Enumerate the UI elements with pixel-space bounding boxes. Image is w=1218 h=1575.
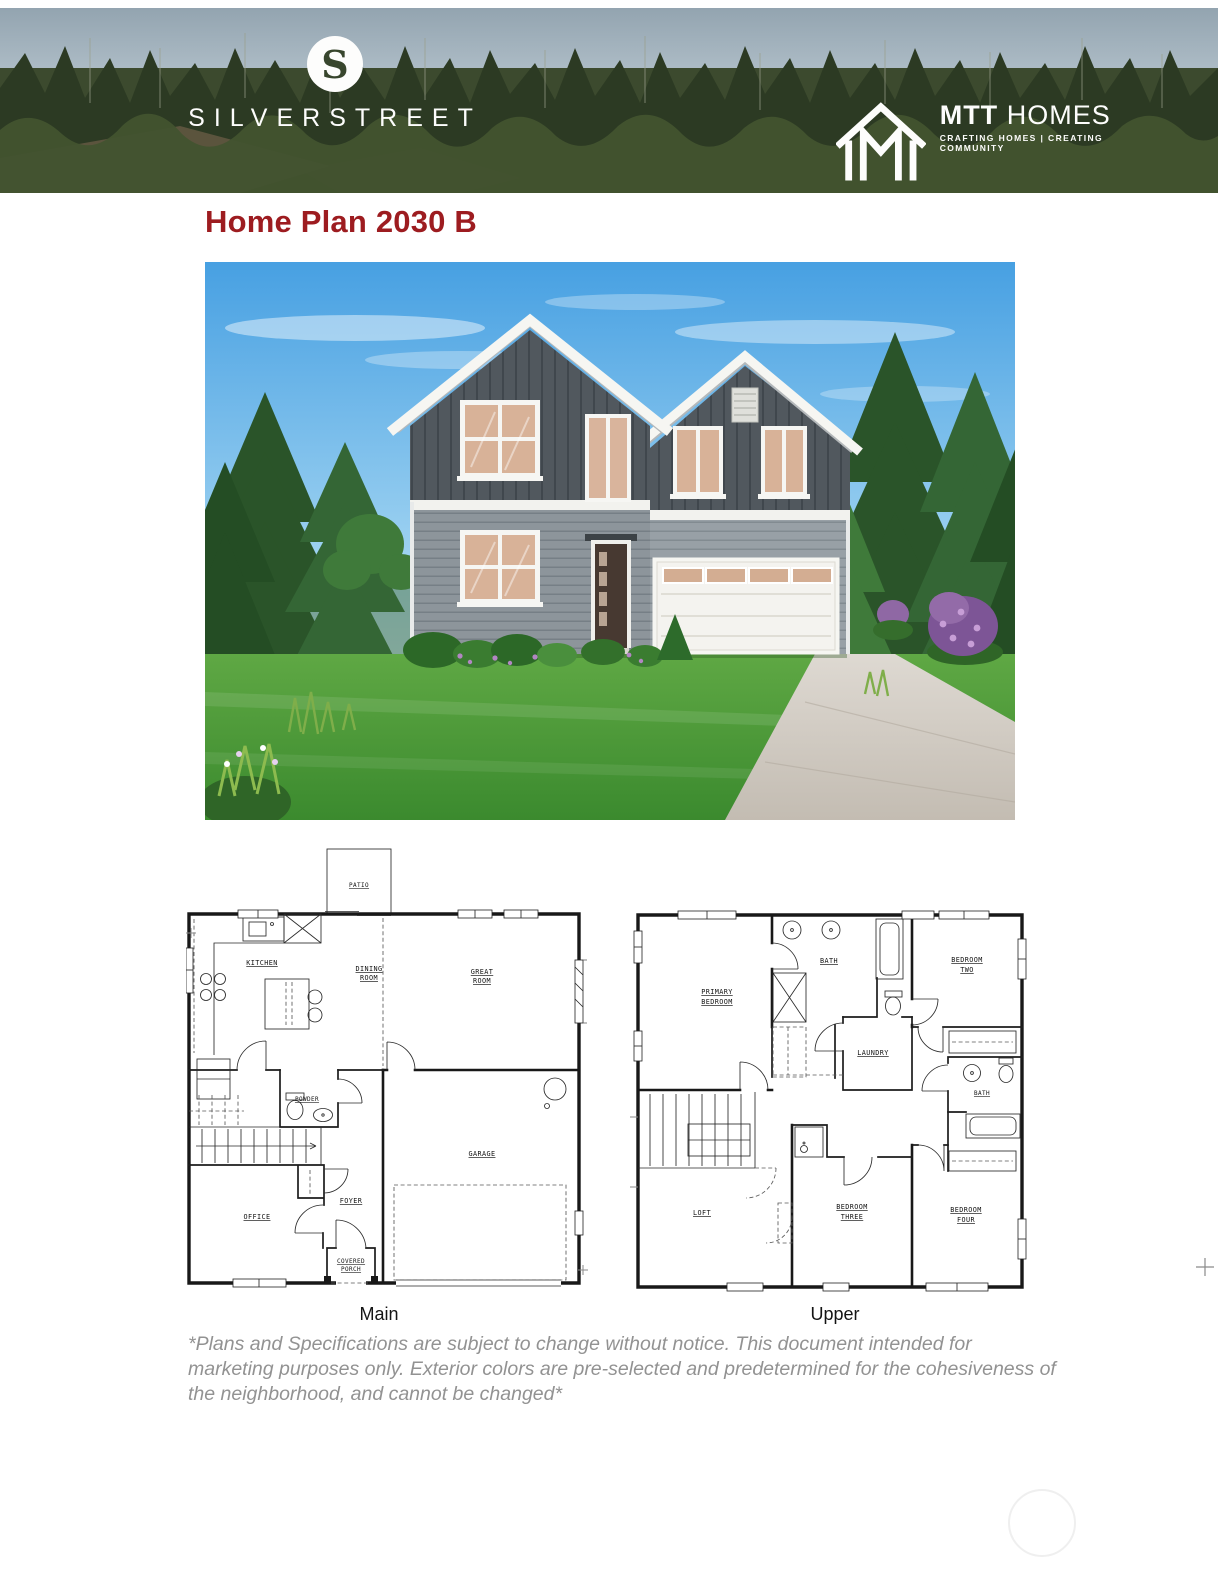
disclaimer-line-3: the neighborhood, and cannot be changed* [188, 1382, 1108, 1407]
room-label-bath2: BATH [974, 1090, 990, 1097]
room-label-kitchen: KITCHEN [246, 959, 277, 967]
house-rendering [205, 262, 1015, 820]
render-ground [205, 654, 1015, 820]
main-interior-walls [189, 1070, 579, 1283]
room-label-dining-1: DINING [356, 965, 383, 973]
room-label-laundry: LAUNDRY [857, 1049, 888, 1057]
forest-banner: S SILVERSTREET MTT HOMES [0, 8, 1218, 193]
room-label-powder: POWDER [295, 1096, 319, 1103]
window-right-gable-2 [758, 426, 810, 499]
room-label-porch-1: COVERED [337, 1258, 365, 1265]
floor-plan-upper: PRIMARY BEDROOM BATH BEDROOM TWO LAUNDRY… [630, 905, 1028, 1305]
upper-stairs [638, 1092, 755, 1168]
room-label-primary-2: BEDROOM [701, 998, 732, 1006]
front-door [585, 534, 637, 654]
page-title: Home Plan 2030 B [205, 204, 477, 240]
bath-fixtures [773, 919, 903, 1022]
survey-cross [186, 928, 588, 1275]
floor-trim-right [650, 510, 850, 520]
window-center-tall [585, 414, 631, 502]
window-upper-left [457, 400, 543, 481]
caption-upper-floor: Upper [735, 1304, 935, 1325]
room-label-bedroom3-2: THREE [841, 1213, 863, 1221]
caption-main-floor: Main [279, 1304, 479, 1325]
room-label-patio: PATIO [349, 882, 369, 889]
flyer-page: S SILVERSTREET MTT HOMES [0, 0, 1218, 1575]
kitchen-fixtures [194, 914, 322, 1099]
floor-plan-main: PATIO [186, 843, 588, 1313]
room-label-dining-2: ROOM [360, 974, 378, 982]
mtt-homes-logo: MTT HOMES CRAFTING HOMES | CREATING COMM… [836, 100, 1166, 182]
house-rendering-image [205, 262, 1015, 820]
room-label-bedroom4-2: FOUR [957, 1216, 975, 1224]
registration-cross [1196, 1258, 1214, 1276]
silverstreet-logo: S SILVERSTREET [185, 36, 485, 133]
room-label-bedroom2-1: BEDROOM [951, 956, 982, 964]
disclaimer-line-2: marketing purposes only. Exterior colors… [188, 1357, 1108, 1382]
mtt-tagline: CRAFTING HOMES | CREATING COMMUNITY [940, 133, 1166, 153]
silverstreet-wordmark: SILVERSTREET [185, 104, 485, 133]
room-label-loft: LOFT [693, 1209, 711, 1217]
room-label-porch-2: PORCH [341, 1266, 361, 1273]
room-label-primary-1: PRIMARY [701, 988, 732, 996]
mtt-brand-bold: MTT [940, 100, 998, 130]
garage-fixtures [394, 1078, 566, 1280]
room-label-great-1: GREAT [471, 968, 493, 976]
bath2-fixtures [949, 1031, 1020, 1171]
mtt-house-icon [836, 100, 926, 182]
window-lower-left [457, 530, 543, 607]
window-right-gable-1 [670, 426, 726, 499]
gable-vent [732, 388, 758, 422]
room-label-bedroom2-2: TWO [960, 966, 973, 974]
room-label-bedroom3-1: BEDROOM [836, 1203, 867, 1211]
loft-dashed-lines [746, 1168, 792, 1243]
room-label-bath: BATH [820, 957, 838, 965]
silverstreet-icon: S [307, 36, 363, 92]
main-stairs [189, 1095, 321, 1165]
room-label-bedroom4-1: BEDROOM [950, 1206, 981, 1214]
room-label-garage: GARAGE [469, 1150, 496, 1158]
bedroom3-vanity [795, 1127, 823, 1157]
mtt-brand: MTT HOMES [940, 100, 1166, 130]
disclaimer-line-1: *Plans and Specifications are subject to… [188, 1332, 1108, 1357]
mtt-brand-light: HOMES [1007, 100, 1111, 130]
room-label-great-2: ROOM [473, 977, 491, 985]
disclaimer-text: *Plans and Specifications are subject to… [188, 1332, 1108, 1407]
room-label-office: OFFICE [244, 1213, 271, 1221]
silverstreet-icon-letter: S [321, 42, 348, 87]
primary-closet [773, 1027, 843, 1077]
room-label-foyer: FOYER [340, 1197, 363, 1205]
watermark-circle [1008, 1489, 1076, 1557]
